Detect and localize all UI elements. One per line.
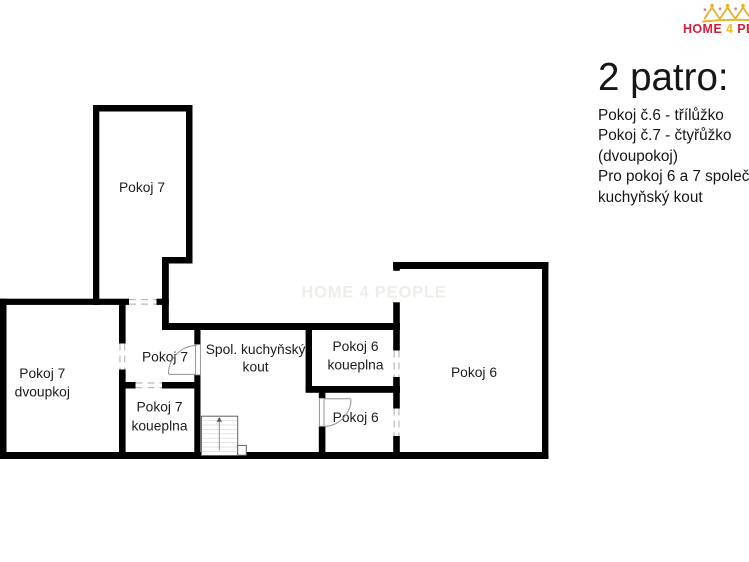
svg-text:kout: kout	[243, 360, 269, 375]
svg-text:HOME 4 PEOPLE: HOME 4 PEOPLE	[301, 284, 446, 302]
svg-text:koueplna: koueplna	[131, 419, 187, 434]
svg-text:Pokoj 6: Pokoj 6	[333, 410, 379, 425]
svg-text:Pokoj 6: Pokoj 6	[451, 365, 497, 380]
svg-text:Pokoj 7: Pokoj 7	[119, 180, 165, 195]
svg-text:Spol. kuchyňský: Spol. kuchyňský	[206, 342, 306, 357]
svg-text:koueplna: koueplna	[327, 358, 383, 373]
svg-text:Pokoj 7: Pokoj 7	[136, 400, 182, 415]
svg-text:Pokoj 6: Pokoj 6	[332, 339, 378, 354]
svg-text:Pokoj 7: Pokoj 7	[19, 366, 65, 381]
svg-text:dvoupkoj: dvoupkoj	[15, 385, 70, 400]
svg-text:HOME 4 PEOPLE: HOME 4 PEOPLE	[683, 22, 749, 36]
svg-text:Pokoj 7: Pokoj 7	[142, 350, 188, 365]
